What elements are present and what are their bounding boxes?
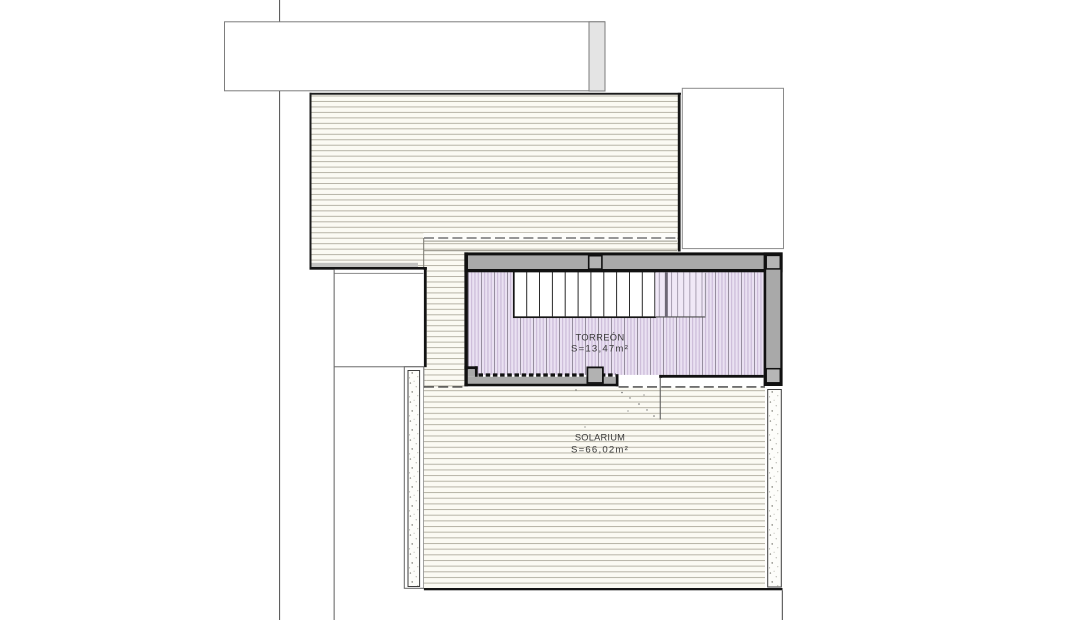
svg-text:TORREÓN: TORREÓN bbox=[575, 333, 624, 343]
svg-text:S=13,47m²: S=13,47m² bbox=[571, 343, 629, 354]
svg-text:S=66,02m²: S=66,02m² bbox=[571, 445, 629, 456]
svg-text:SOLARIUM: SOLARIUM bbox=[575, 432, 625, 442]
